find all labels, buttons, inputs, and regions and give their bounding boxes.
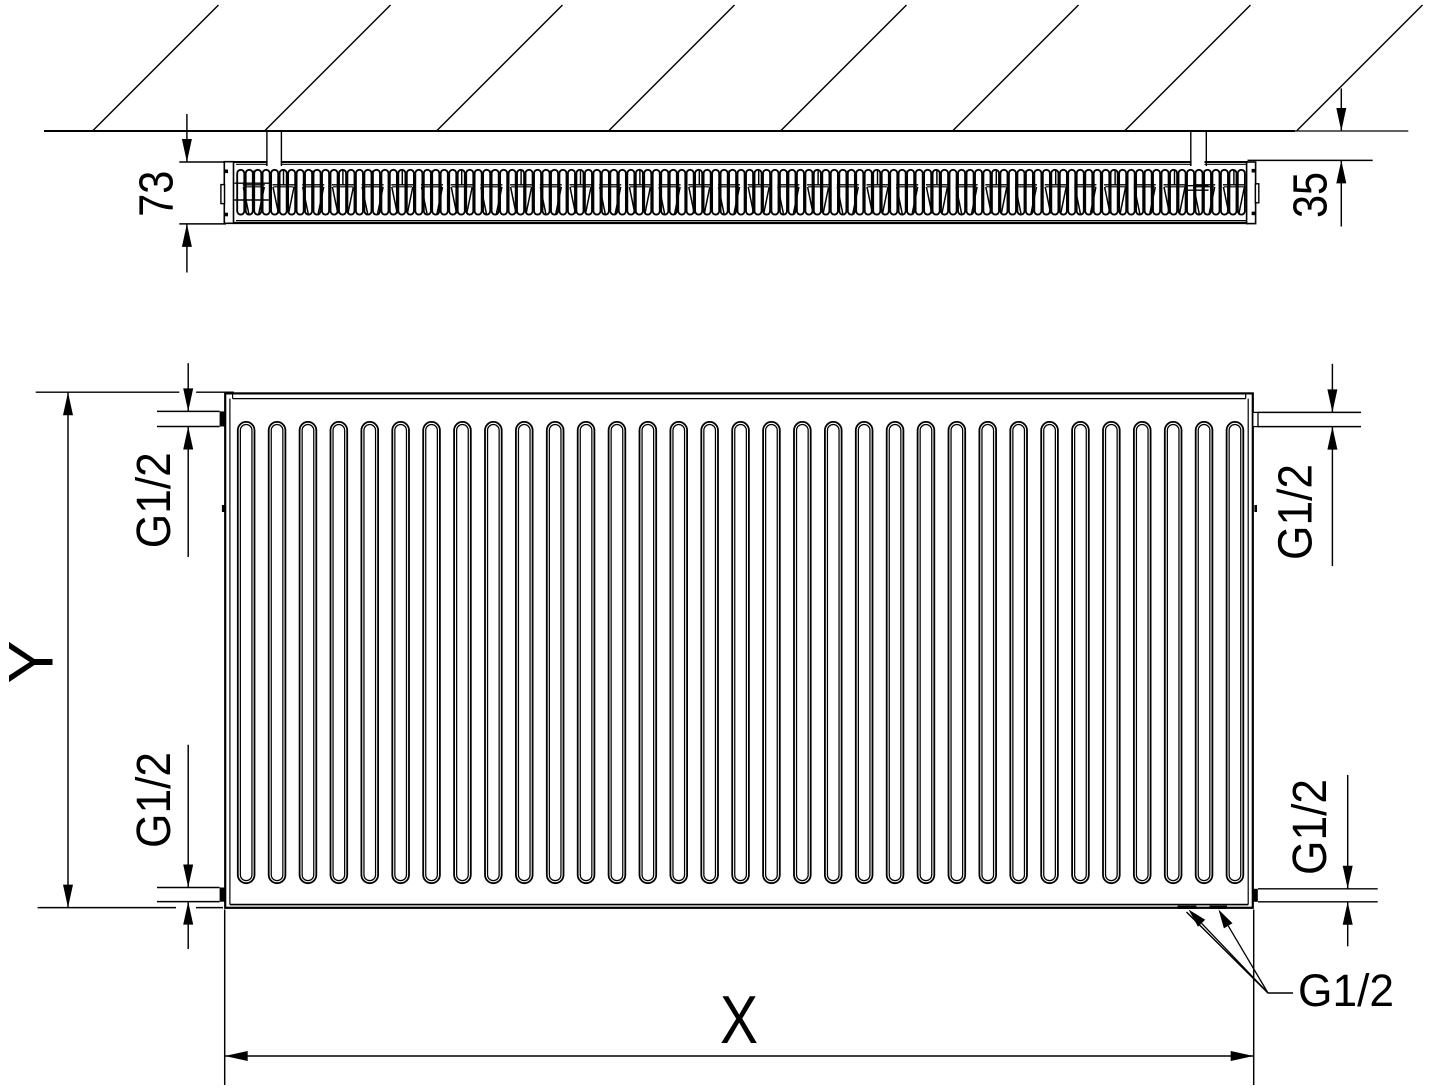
svg-text:G1/2: G1/2 [1298, 965, 1394, 1016]
svg-text:G1/2: G1/2 [1270, 464, 1323, 560]
svg-text:G1/2: G1/2 [128, 752, 181, 848]
svg-text:35: 35 [1285, 172, 1338, 218]
svg-text:G1/2: G1/2 [1284, 779, 1337, 875]
svg-text:Y: Y [0, 641, 67, 684]
svg-text:G1/2: G1/2 [128, 452, 181, 548]
svg-text:X: X [720, 982, 758, 1058]
svg-text:73: 73 [131, 171, 184, 217]
